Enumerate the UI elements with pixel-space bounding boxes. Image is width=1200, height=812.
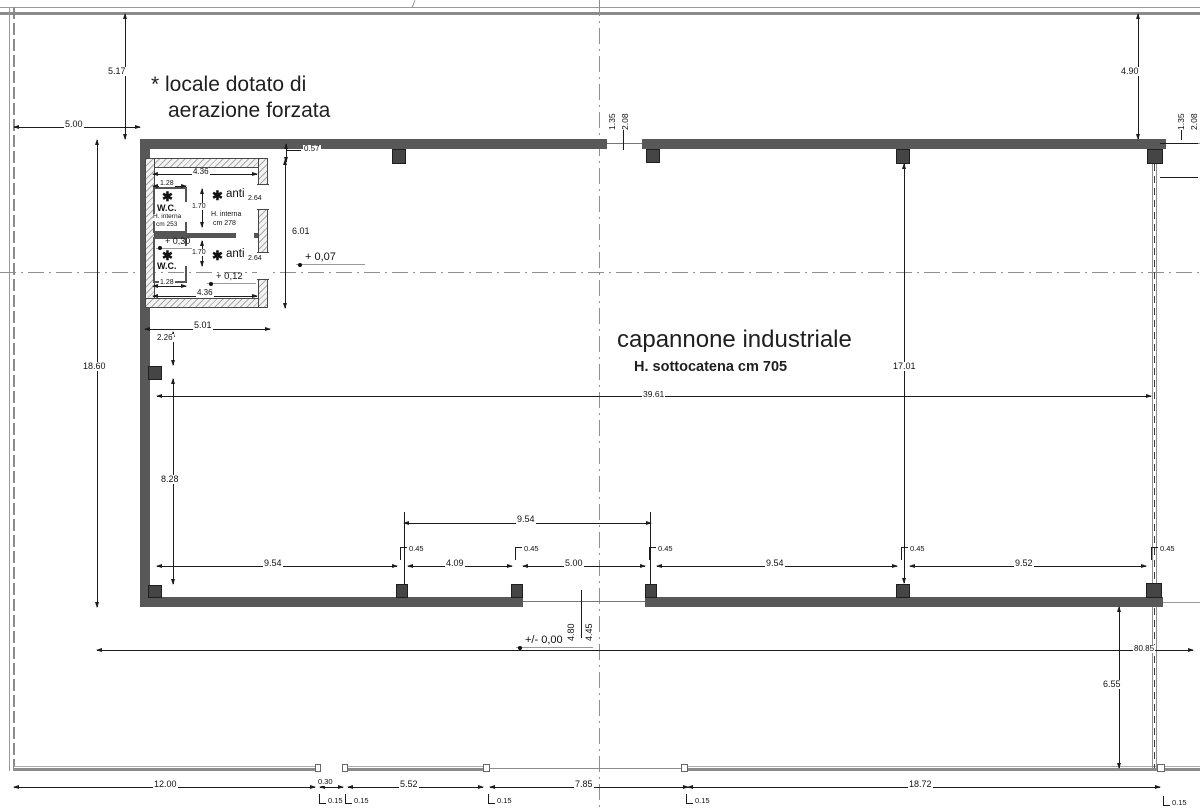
column: [392, 149, 406, 164]
leader-0-45: [1151, 547, 1158, 560]
right-panel-wall: [1152, 164, 1157, 768]
dim-label-17-01: 17.01: [892, 362, 917, 371]
leader-0-15: [686, 794, 693, 804]
line-4-80-4-45: [581, 590, 582, 638]
dim-label-4-90: 4.90: [1120, 67, 1140, 76]
door-opening: [184, 202, 188, 222]
star-icon: ✱: [212, 189, 223, 202]
dim-label-5-00: 5.00: [564, 559, 584, 568]
door-threshold-top: [607, 143, 642, 144]
dim-line-0-30: [320, 787, 343, 788]
dim-label-0-15: 0.15: [496, 797, 513, 805]
fence-post: [342, 764, 348, 772]
dim-label-9-54: 9.54: [263, 559, 283, 568]
leader-0-15: [488, 794, 495, 804]
dim-line-6-01: [285, 160, 286, 308]
dim-line-5-00-door: [523, 566, 645, 567]
dim-label-5-00: 5.00: [64, 120, 84, 129]
dim-label-12-00: 12.00: [153, 780, 178, 789]
wall-top-left-segment: [140, 139, 607, 149]
wall-bottom-left-segment: [140, 597, 523, 607]
dim-label-18-60: 18.60: [82, 362, 107, 371]
line-right-of-bottom-wall: [1163, 602, 1200, 603]
level-marker-012: + 0,12: [207, 272, 256, 284]
dim-label-39-61: 39.61: [642, 390, 665, 399]
room-note-cm278: cm 278: [213, 220, 236, 227]
leader-0-57: [287, 150, 301, 151]
dim-label-2-26: 2.26: [156, 334, 174, 342]
dim-label-0-45: 0.45: [523, 545, 540, 553]
dim-label-80-85: 80.85: [1133, 645, 1155, 653]
door-threshold-bottom: [523, 601, 645, 602]
room-label-anti-top: anti: [226, 189, 245, 201]
dim-label-0-15: 0.15: [327, 797, 344, 805]
column-corner-bottom-right: [1146, 583, 1162, 598]
dim-label-7-85: 7.85: [574, 780, 594, 789]
fence-post: [681, 764, 688, 772]
column-corner-top-right: [1147, 149, 1163, 164]
room-note-cm253: cm 253: [156, 222, 177, 229]
door-tick-top-middle: [623, 128, 624, 150]
dim-label-5-17: 5.17: [107, 67, 127, 76]
leader-0-45: [901, 547, 908, 560]
wall-bottom-right-segment: [645, 597, 1163, 607]
fence-segment: [14, 766, 315, 771]
leader-0-15: [345, 794, 352, 804]
dim-label-4-36: 4.36: [196, 289, 214, 297]
boundary-top-thin: [0, 7, 1200, 8]
plan-note: * locale dotato di aerazione forzata: [151, 72, 330, 125]
leader-0-45: [649, 547, 656, 560]
dim-label-1-35: 1.35: [1177, 88, 1186, 130]
dim-label-0-57: 0.57: [303, 145, 321, 153]
fence-segment: [348, 766, 483, 771]
column: [645, 584, 657, 598]
floor-plan: 5.00 5.17 4.90 18.60 0.57 4.36 1.28 1.70…: [0, 0, 1200, 812]
dim-label-4-09: 4.09: [445, 559, 465, 568]
column: [148, 585, 162, 598]
leader-0-15: [1163, 796, 1170, 806]
leader-0-15: [319, 794, 326, 804]
dim-label-8-28: 8.28: [160, 475, 180, 484]
hall-title: capannone industriale: [617, 328, 852, 352]
room-label-anti-bottom: anti: [226, 249, 245, 261]
column: [148, 366, 162, 380]
door-opening: [236, 233, 254, 238]
plan-note-line2: aerazione forzata: [151, 98, 330, 124]
dim-line-1-28-bottom: [153, 286, 186, 287]
room-label-anti-height: 2.64: [248, 255, 262, 262]
door-tick-top-right: [1160, 177, 1198, 178]
door-tick-top-right: [1160, 143, 1198, 144]
fence-post: [483, 764, 490, 772]
dim-label-0-45: 0.45: [657, 545, 674, 553]
room-note-h-interna: H. interna: [211, 211, 241, 218]
door-opening: [184, 246, 188, 266]
dim-label-1-70: 1.70: [191, 249, 207, 256]
dim-label-9-54: 9.54: [765, 559, 785, 568]
dim-label-1-28: 1.28: [159, 180, 175, 187]
dim-label-0-45: 0.45: [1159, 545, 1176, 553]
column: [646, 149, 660, 163]
room-note-h-interna: H. interna: [153, 214, 181, 221]
room-label-wc-bottom: W.C.: [157, 262, 177, 271]
boundary-top-thick: [0, 12, 1200, 15]
dim-label-0-15: 0.15: [1171, 799, 1188, 807]
dim-line-80-85: [97, 650, 1193, 651]
dim-label-1-28: 1.28: [159, 279, 175, 286]
fence-segment: [1165, 766, 1200, 771]
fence-post: [1157, 764, 1165, 772]
dim-label-0-30: 0.30: [317, 778, 334, 786]
dim-line-4-90: [1138, 14, 1139, 139]
star-icon: ✱: [212, 249, 223, 262]
dim-line-5-17: [125, 14, 126, 139]
dim-label-4-36: 4.36: [192, 168, 210, 176]
fence-post: [315, 764, 321, 772]
level-marker-000: +/- 0,00: [516, 634, 593, 648]
wall-top-right-segment: [642, 139, 1166, 149]
boundary-left-thin: [9, 7, 10, 771]
leader-0-45: [515, 547, 522, 560]
dim-label-6-55: 6.55: [1102, 680, 1122, 689]
dim-line-18-60: [97, 140, 98, 607]
fence-segment: [688, 766, 1158, 771]
dim-label-2-08: 2.08: [1190, 88, 1199, 130]
dim-label-1-70: 1.70: [191, 203, 207, 210]
dim-label-9-54: 9.54: [516, 515, 536, 524]
dim-line-17-01: [904, 164, 905, 583]
hall-subtitle: H. sottocatena cm 705: [634, 360, 787, 375]
wc-block-wall-right: [258, 158, 268, 308]
column: [896, 584, 910, 598]
dim-label-0-15: 0.15: [353, 797, 370, 805]
dim-label-0-15: 0.15: [694, 797, 711, 805]
dim-label-6-01: 6.01: [291, 227, 311, 236]
leader-0-45: [400, 547, 407, 560]
dim-label-2-08: 2.08: [621, 88, 630, 130]
gate-line: [483, 768, 688, 769]
wc-block-wall-bottom: [145, 298, 268, 308]
star-icon: ✱: [162, 190, 173, 203]
dim-label-0-45: 0.45: [909, 545, 926, 553]
dim-label-5-52: 5.52: [399, 780, 419, 789]
dim-label-9-52: 9.52: [1014, 559, 1034, 568]
boundary-left-dashed: [13, 7, 15, 771]
room-label-anti-height: 2.64: [248, 195, 262, 202]
dim-label-18-72: 18.72: [908, 780, 933, 789]
plan-note-line1: * locale dotato di: [151, 72, 330, 98]
column: [511, 584, 523, 598]
column: [896, 149, 910, 164]
centerline-vertical: [599, 0, 600, 812]
level-marker-007: + 0,07: [296, 251, 365, 265]
column: [396, 584, 408, 598]
dim-label-5-01: 5.01: [193, 321, 213, 330]
dim-label-0-45: 0.45: [408, 545, 425, 553]
room-label-wc-top: W.C.: [157, 204, 177, 213]
dim-label-1-35: 1.35: [608, 88, 617, 130]
